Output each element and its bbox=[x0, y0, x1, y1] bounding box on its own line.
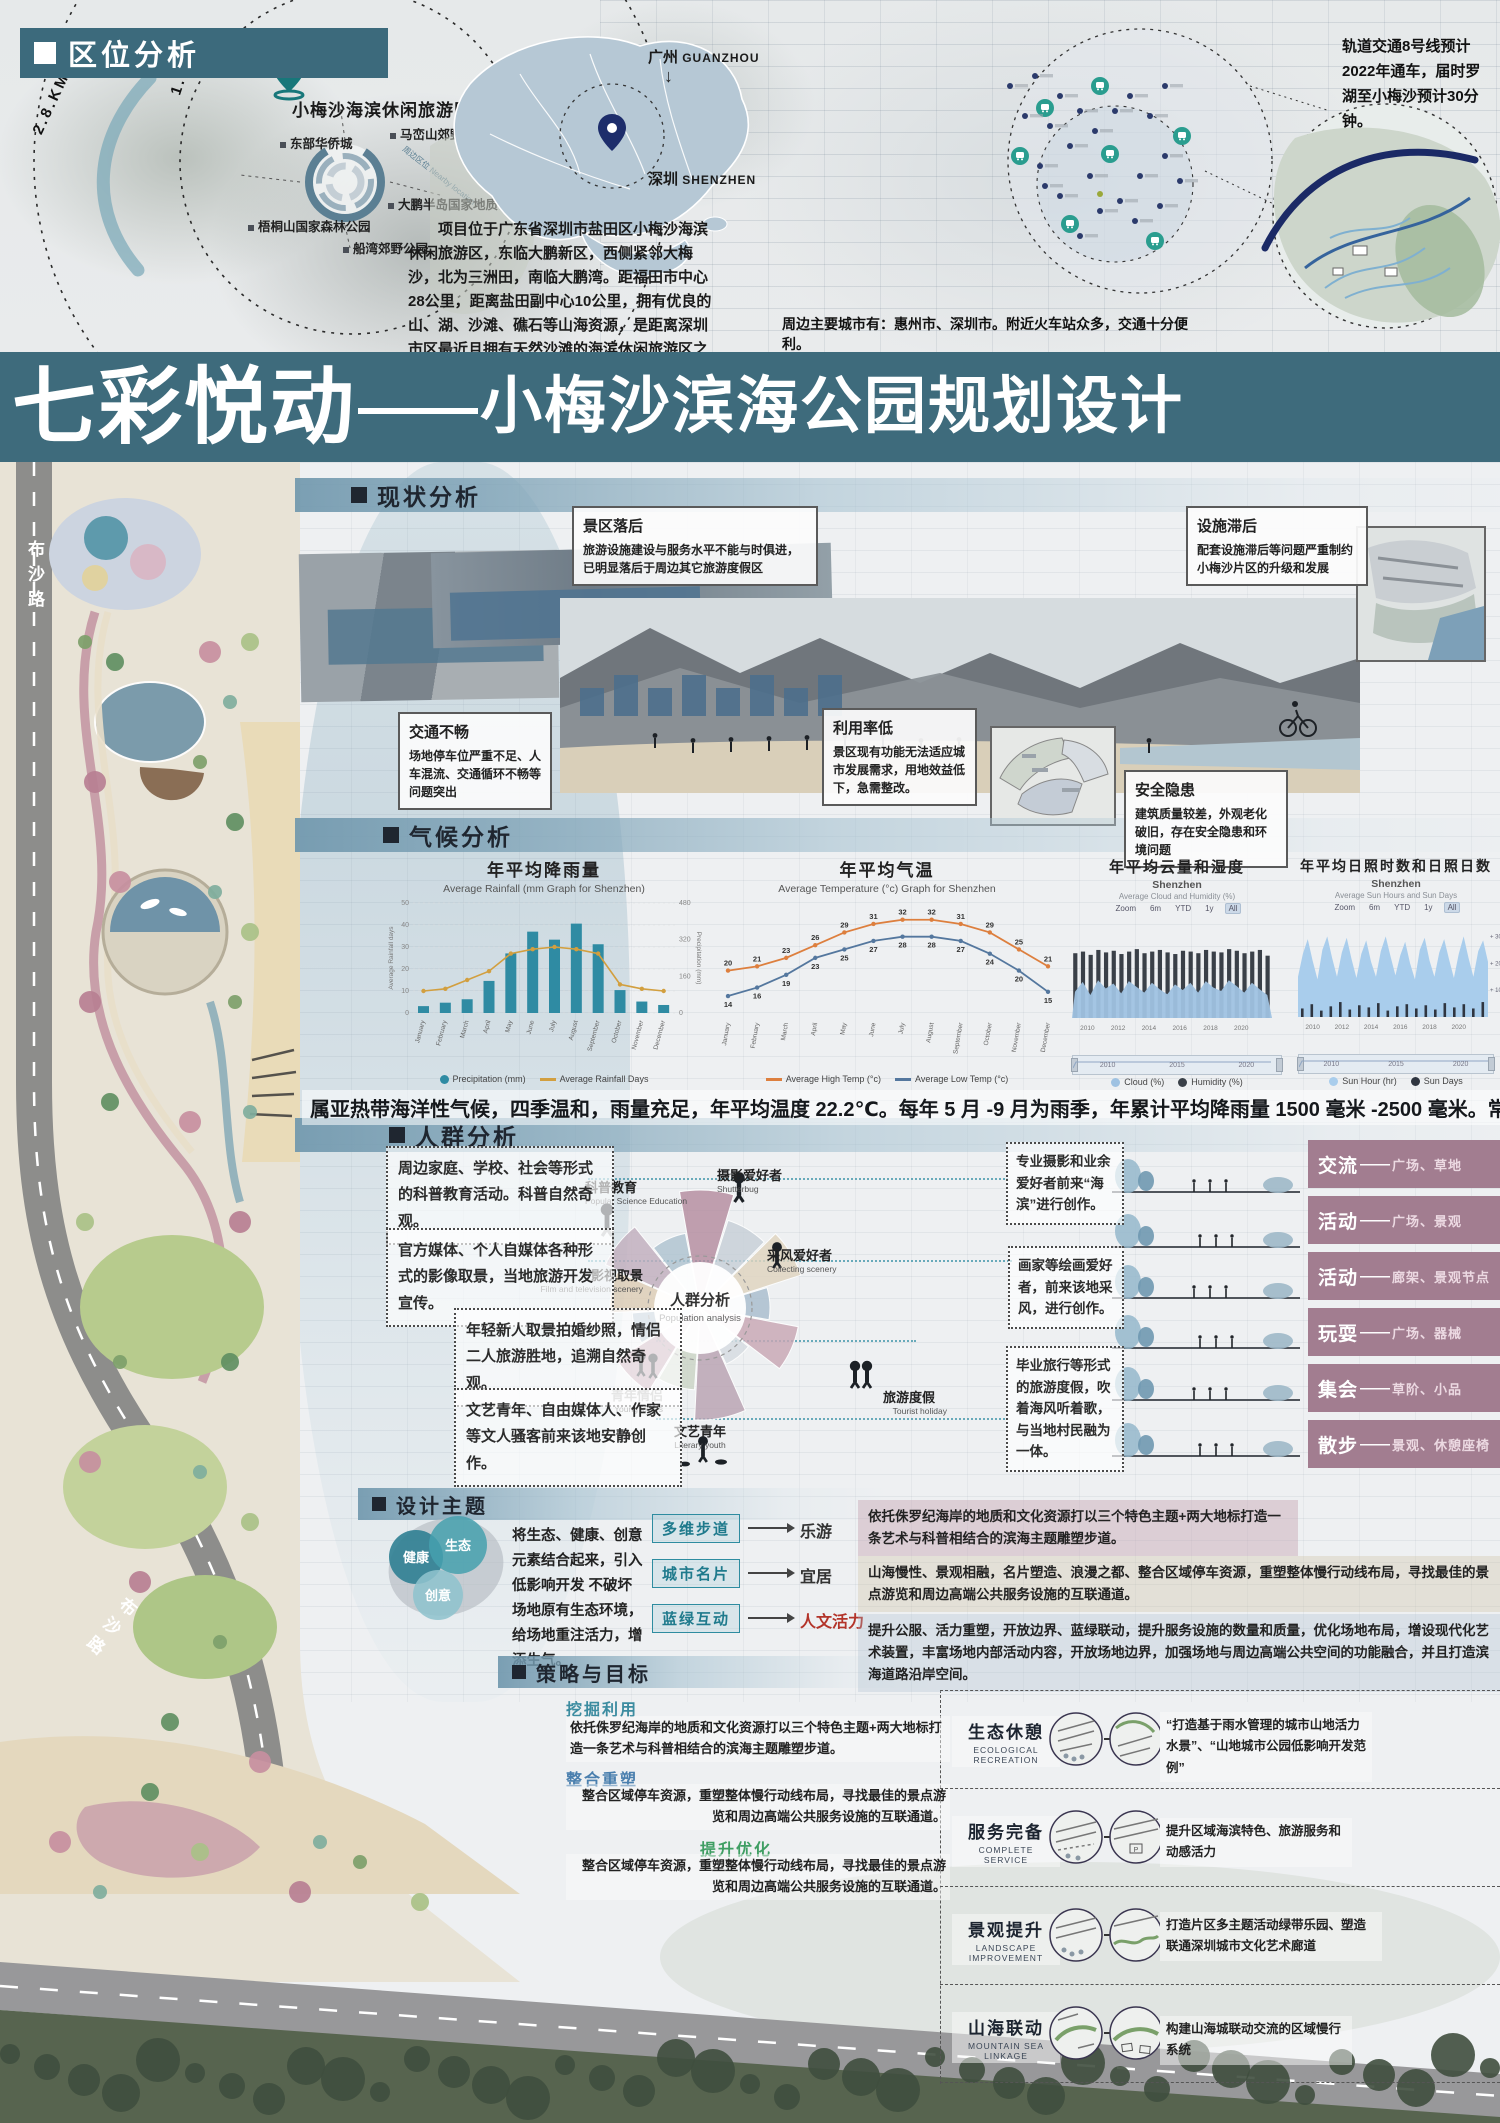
tick-label: January bbox=[414, 1019, 427, 1044]
tick-label: 160 bbox=[679, 973, 691, 980]
poi-label-ocbc: 东部华侨城 bbox=[280, 133, 353, 152]
tag-activity: 散步 bbox=[1318, 1431, 1358, 1458]
sun-legend: Sun Hour (hr)Sun Days bbox=[1292, 1076, 1500, 1086]
callout-body: 建筑质量较差，外观老化破旧，存在安全隐患和环境问题 bbox=[1135, 805, 1277, 859]
transit-note: 轨道交通8号线预计2022年通车，届时罗湖至小梅沙预计30分钟。 bbox=[1342, 34, 1494, 134]
legend-item: Cloud (%) bbox=[1111, 1077, 1164, 1087]
zoom-range-button[interactable]: 1y bbox=[1202, 904, 1216, 913]
climate-analysis-header: 气候分析 bbox=[295, 818, 1500, 852]
tick-label: 2014 bbox=[1142, 1025, 1157, 1032]
tick-label: 2010 bbox=[1305, 1024, 1320, 1031]
tick-label: 0 bbox=[679, 1010, 683, 1017]
tick-label: 28 bbox=[927, 941, 935, 950]
tick-label: 23 bbox=[811, 962, 819, 971]
guangzhou-zh: 广州 bbox=[648, 49, 678, 66]
callout-body: 配套设施滞后等问题严重制约小梅沙片区的升级和发展 bbox=[1197, 541, 1357, 577]
goal-label-landscape: 景观提升 LANDSCAPE IMPROVEMENT bbox=[952, 1914, 1060, 1965]
group-collecting-zh: 采风爱好者 bbox=[766, 1248, 832, 1263]
tick-label: 2012 bbox=[1111, 1025, 1126, 1032]
chart-subtitle: Average Rainfall (mm Graph for Shenzhen) bbox=[383, 883, 705, 895]
legend-item: Average Low Temp (°c) bbox=[895, 1074, 1008, 1084]
scrubber-year-label: 2020 bbox=[1453, 1061, 1469, 1068]
tag-assembly: 集会——草阶、小品 bbox=[1308, 1364, 1500, 1412]
tick-label: January bbox=[721, 1021, 732, 1046]
tick-label: February bbox=[750, 1021, 762, 1049]
temperature-line bbox=[728, 920, 1048, 971]
tick-label: 29 bbox=[986, 920, 994, 929]
tick-label: November bbox=[631, 1019, 646, 1051]
tag-separator: —— bbox=[1360, 1268, 1390, 1285]
tick-label: + 300hr bbox=[1490, 934, 1500, 940]
goal-diagram-ecological bbox=[1048, 1706, 1160, 1772]
tick-label: December bbox=[653, 1019, 668, 1051]
tick-label: 19 bbox=[782, 979, 790, 988]
tag-separator: —— bbox=[1360, 1380, 1390, 1397]
zoom-range-button[interactable]: 6m bbox=[1366, 903, 1383, 912]
location-analysis-header: 区位分析 bbox=[20, 28, 388, 78]
tick-label: 23 bbox=[782, 946, 790, 955]
zoom-range-button[interactable]: All bbox=[1225, 903, 1242, 914]
callout-traffic: 交通不畅 场地停车位严重不足、人车混流、交通循环不畅等问题突出 bbox=[398, 712, 552, 810]
tick-label: 2018 bbox=[1203, 1025, 1218, 1032]
rainfall-plot: 010203040500160320480Average Rainfall da… bbox=[383, 895, 705, 1067]
tag-activity: 活动 bbox=[1318, 1207, 1358, 1234]
chart-subtitle: Shenzhen bbox=[1066, 879, 1288, 891]
tick-label: 2020 bbox=[1452, 1024, 1467, 1031]
callout-title: 设施滞后 bbox=[1197, 515, 1357, 536]
poster-title-rest: 小梅沙滨海公园规划设计 bbox=[480, 376, 1184, 438]
tag-activity: 活动 bbox=[1318, 1263, 1358, 1290]
pop-note-photographers: 专业摄影和业余爱好者前来“海滨”进行创作。 bbox=[1006, 1142, 1124, 1225]
status-analysis-title: 现状分析 bbox=[377, 478, 481, 512]
location-analysis-title: 区位分析 bbox=[68, 32, 200, 74]
tag-activity: 集会 bbox=[1318, 1375, 1358, 1402]
tick-label: 20 bbox=[724, 959, 732, 968]
tick-label: 30 bbox=[401, 944, 409, 951]
svg-text:P: P bbox=[1134, 1847, 1139, 1854]
tick-label: Average Rainfall days bbox=[388, 926, 395, 990]
climate-analysis-title: 气候分析 bbox=[409, 818, 513, 852]
callout-title: 交通不畅 bbox=[409, 721, 541, 742]
tick-label: 32 bbox=[927, 908, 935, 917]
sun-zoom-controls: Zoom6mYTD1yAll bbox=[1292, 902, 1500, 913]
tag-places: 广场、草地 bbox=[1392, 1155, 1462, 1174]
rainfall-chart: 年平均降雨量 Average Rainfall (mm Graph for Sh… bbox=[383, 856, 705, 1084]
tick-label: 28 bbox=[898, 941, 906, 950]
tick-label: April bbox=[810, 1022, 819, 1037]
tick-label: 27 bbox=[869, 945, 877, 954]
header-square-icon bbox=[383, 827, 399, 843]
tick-label: March bbox=[780, 1022, 790, 1041]
temperature-plot: 2021232629313232312925211416192325272828… bbox=[712, 895, 1062, 1067]
shenzhen-label: 深圳 SHENZHEN bbox=[648, 168, 756, 189]
tick-label: May bbox=[504, 1019, 514, 1033]
sun-scrubber[interactable]: 201020152020 bbox=[1298, 1054, 1494, 1074]
design-paragraph-3: 提升公服、活力重塑，开放边界、蓝绿联动，提升服务设施的数量和质量，优化场地布局，… bbox=[858, 1614, 1500, 1692]
tick-label: August bbox=[568, 1020, 580, 1042]
tick-label: 14 bbox=[724, 1000, 733, 1009]
group-holiday-zh: 旅游度假 bbox=[883, 1390, 936, 1405]
callout-title: 利用率低 bbox=[833, 717, 966, 738]
callout-low-utilization: 利用率低 景区现有功能无法适应城市发展需求，用地效益低下，急需整改。 bbox=[822, 708, 977, 806]
chart-title: 年平均日照时数和日照日数 bbox=[1292, 856, 1500, 876]
zoom-range-button[interactable]: YTD bbox=[1172, 904, 1194, 913]
scrubber-year-label: 2010 bbox=[1100, 1062, 1116, 1069]
tick-label: 320 bbox=[679, 937, 691, 944]
strategy-body-excavate: 依托侏罗纪海岸的地质和文化资源打以三个特色主题+两大地标打造一条艺术与科普相结合… bbox=[566, 1716, 950, 1762]
tick-label: April bbox=[482, 1019, 492, 1034]
cloud-scrubber[interactable]: 201020152020 bbox=[1072, 1055, 1282, 1075]
goal-desc-ecological: “打造基于雨水管理的城市山地活力水景”、“山地城市公园低影响开发范例” bbox=[1160, 1712, 1372, 1782]
goal-title-en: COMPLETE SERVICE bbox=[956, 1845, 1056, 1865]
venn-diagram: 健康 生态 创意 bbox=[378, 1505, 508, 1637]
tick-label: 27 bbox=[957, 945, 965, 954]
tag-places: 广场、景观 bbox=[1392, 1211, 1462, 1230]
goal-row-divider bbox=[940, 2082, 1500, 2083]
goal-row-divider bbox=[940, 1788, 1500, 1789]
legend-item: Average Rainfall Days bbox=[540, 1074, 649, 1084]
tick-label: December bbox=[1040, 1021, 1052, 1053]
venn-creativity: 创意 bbox=[424, 1588, 451, 1603]
cloud-zoom-controls: Zoom6mYTD1yAll bbox=[1066, 903, 1288, 914]
tag-separator: —— bbox=[1360, 1436, 1390, 1453]
temperature-legend: Average High Temp (°c)Average Low Temp (… bbox=[712, 1074, 1062, 1084]
arrow-down-icon: ↓ bbox=[664, 66, 673, 87]
zoom-range-button[interactable]: All bbox=[1444, 902, 1461, 913]
cloud-area bbox=[1072, 980, 1272, 1018]
scrubber-year-label: 2020 bbox=[1239, 1062, 1255, 1069]
arrow-right-icon bbox=[748, 1617, 788, 1619]
sun-plot: + 300hr+ 200hr+ 100hr2010201220142016201… bbox=[1292, 913, 1500, 1045]
tick-label: 2016 bbox=[1172, 1025, 1187, 1032]
design-theme-intro: 将生态、健康、创意元素结合起来，引入低影响开发 不破坏场地原有生态环境，给场地重… bbox=[512, 1524, 646, 1674]
tag-separator: —— bbox=[1360, 1324, 1390, 1341]
tick-label: 26 bbox=[811, 933, 819, 942]
temperature-line bbox=[728, 937, 1048, 996]
header-square-icon bbox=[351, 487, 367, 503]
tag-places: 廊架、景观节点 bbox=[1392, 1267, 1490, 1286]
guangzhou-en: GUANZHOU bbox=[682, 51, 759, 65]
goal-row-divider bbox=[940, 1886, 1500, 1887]
tick-label: 480 bbox=[679, 900, 691, 907]
tick-label: 2018 bbox=[1422, 1024, 1437, 1031]
chart-note: Average Sun Hours and Sun Days bbox=[1292, 891, 1500, 900]
flow-target-leisure: 乐游 bbox=[800, 1518, 832, 1542]
framed-zoning-diagram bbox=[990, 726, 1116, 826]
header-square-icon bbox=[389, 1127, 405, 1143]
tag-activity-1: 活动——广场、景观 bbox=[1308, 1196, 1500, 1244]
cloud-legend: Cloud (%)Humidity (%) bbox=[1066, 1077, 1288, 1087]
design-paragraph-1: 依托侏罗纪海岸的地质和文化资源打以三个特色主题+两大地标打造一条艺术与科普相结合… bbox=[858, 1500, 1298, 1556]
temperature-chart: 年平均气温 Average Temperature (°c) Graph for… bbox=[712, 856, 1062, 1084]
chart-subtitle: Average Temperature (°c) Graph for Shenz… bbox=[712, 883, 1062, 895]
group-holiday-en: Tourist holiday bbox=[893, 1406, 948, 1416]
goal-title-en: MOUNTAIN SEA LINKAGE bbox=[956, 2041, 1056, 2061]
activity-section-sketches bbox=[1108, 1140, 1304, 1470]
chart-title: 年平均降雨量 bbox=[383, 856, 705, 881]
tick-label: 0 bbox=[405, 1010, 409, 1017]
legend-item: Sun Hour (hr) bbox=[1329, 1076, 1397, 1086]
tag-walk: 散步——景观、休憩座椅 bbox=[1308, 1420, 1500, 1468]
tick-label: November bbox=[1011, 1021, 1023, 1053]
tag-places: 景观、休憩座椅 bbox=[1392, 1435, 1490, 1454]
strategy-goals-title: 策略与目标 bbox=[536, 1658, 651, 1687]
legend-item: Precipitation (mm) bbox=[440, 1074, 526, 1084]
plan-thumbnail-art bbox=[1358, 528, 1484, 660]
pop-note-tourists: 毕业旅行等形式的旅游度假，吹着海风听着歌，与当地村民融为一体。 bbox=[1006, 1346, 1124, 1472]
strategy-body-integrate: 整合区域停车资源，重塑整体慢行动线布局，寻找最佳的景点游览和周边高端公共服务设施… bbox=[566, 1784, 950, 1830]
location-analysis-section: 周边区位 Nearby location 2.8.KM 1.0KM 小梅沙海滨休… bbox=[0, 0, 1500, 352]
pop-note-painters: 画家等绘画爱好者，前来该地采风，进行创作。 bbox=[1008, 1246, 1124, 1329]
goal-desc-linkage: 构建山海城联动交流的区域慢行系统 bbox=[1160, 2016, 1352, 2065]
callout-body: 场地停车位严重不足、人车混流、交通循环不畅等问题突出 bbox=[409, 747, 541, 801]
sun-hours-area bbox=[1298, 936, 1488, 1017]
tick-label: + 100hr bbox=[1490, 988, 1500, 994]
flow-multiway-path: 多维步道 bbox=[652, 1514, 740, 1543]
goal-diagram-linkage bbox=[1048, 2000, 1160, 2066]
tick-label: 20 bbox=[1015, 975, 1023, 984]
tick-label: August bbox=[925, 1022, 935, 1043]
tag-separator: —— bbox=[1360, 1156, 1390, 1173]
tick-label: 2016 bbox=[1393, 1024, 1408, 1031]
zoom-label: Zoom bbox=[1332, 903, 1358, 912]
tick-label: 24 bbox=[986, 958, 995, 967]
cloud-humidity-plot: 201020122014201620182020 bbox=[1066, 914, 1288, 1046]
scrubber-year-label: 2015 bbox=[1388, 1061, 1404, 1068]
tick-label: 31 bbox=[957, 912, 965, 921]
venn-ecology: 生态 bbox=[445, 1538, 471, 1553]
callout-scenic-backward: 景区落后 旅游设施建设与服务水平不能与时俱进，已明显落后于周边其它旅游度假区 bbox=[572, 506, 818, 586]
tick-label: February bbox=[435, 1019, 449, 1047]
tick-label: 25 bbox=[1015, 937, 1023, 946]
group-literary-en: Literary youth bbox=[674, 1440, 726, 1450]
callout-title: 景区落后 bbox=[583, 515, 807, 536]
tick-label: + 200hr bbox=[1490, 961, 1500, 967]
design-paragraph-2: 山海慢性、景观相融，名片塑造、浪漫之都、整合区域停车资源，重塑整体慢行动线布局，… bbox=[858, 1556, 1500, 1612]
precipitation-bars bbox=[418, 924, 669, 1013]
shenzhen-zh: 深圳 bbox=[648, 171, 678, 188]
arrow-right-icon bbox=[748, 1527, 788, 1529]
flow-blue-green: 蓝绿互动 bbox=[652, 1604, 740, 1633]
pop-note-writers: 文艺青年、自由媒体人、作家等文人骚客前来该地安静创作。 bbox=[454, 1388, 682, 1487]
tick-label: Precipitation (mm) bbox=[695, 932, 702, 985]
tick-label: 2010 bbox=[1080, 1025, 1095, 1032]
tag-play: 玩耍——广场、器械 bbox=[1308, 1308, 1500, 1356]
goal-row-divider bbox=[940, 1690, 1500, 1691]
tick-label: 2012 bbox=[1335, 1024, 1350, 1031]
tag-activity: 交流 bbox=[1318, 1151, 1358, 1178]
cloud-humidity-chart: 年平均云量和湿度 Shenzhen Average Cloud and Humi… bbox=[1066, 856, 1288, 1087]
radial-center-zh: 人群分析 bbox=[670, 1291, 730, 1309]
tick-label: 29 bbox=[840, 920, 848, 929]
tick-label: 21 bbox=[1044, 954, 1052, 963]
tag-places: 广场、器械 bbox=[1392, 1323, 1462, 1342]
goal-diagram-landscape bbox=[1048, 1902, 1160, 1968]
tick-label: 32 bbox=[898, 908, 906, 917]
teal-arc-road bbox=[103, 78, 150, 270]
tick-label: 2020 bbox=[1234, 1025, 1249, 1032]
flow-city-card: 城市名片 bbox=[652, 1559, 740, 1588]
tick-label: June bbox=[526, 1019, 537, 1035]
goal-label-linkage: 山海联动 MOUNTAIN SEA LINKAGE bbox=[952, 2012, 1060, 2063]
sun-chart: 年平均日照时数和日照日数 Shenzhen Average Sun Hours … bbox=[1292, 856, 1500, 1086]
tag-separator: —— bbox=[1360, 1212, 1390, 1229]
callout-facility-lag: 设施滞后 配套设施滞后等问题严重制约小梅沙片区的升级和发展 bbox=[1186, 506, 1368, 586]
callout-body: 景区现有功能无法适应城市发展需求，用地效益低下，急需整改。 bbox=[833, 743, 966, 797]
zoom-range-button[interactable]: YTD bbox=[1391, 903, 1413, 912]
chart-note: Average Cloud and Humidity (%) bbox=[1066, 892, 1288, 901]
scrubber-year-label: 2010 bbox=[1324, 1061, 1340, 1068]
poster-title-dash: —— bbox=[358, 377, 478, 437]
tick-label: 25 bbox=[840, 953, 848, 962]
zoom-label: Zoom bbox=[1113, 904, 1139, 913]
goal-title-en: ECOLOGICAL RECREATION bbox=[956, 1745, 1056, 1765]
chart-subtitle: Shenzhen bbox=[1292, 878, 1500, 890]
goal-title: 服务完备 bbox=[956, 1818, 1056, 1843]
goal-label-service: 服务完备 COMPLETE SERVICE bbox=[952, 1816, 1060, 1867]
goal-title-en: LANDSCAPE IMPROVEMENT bbox=[956, 1943, 1056, 1963]
goal-diagram-service: P bbox=[1048, 1804, 1160, 1870]
callout-title: 安全隐患 bbox=[1135, 779, 1277, 800]
flow-target-vitality: 人文活力 bbox=[800, 1608, 864, 1632]
tick-label: 40 bbox=[401, 922, 409, 929]
scrubber-year-label: 2015 bbox=[1169, 1062, 1185, 1069]
tick-label: July bbox=[548, 1019, 558, 1033]
tick-label: 20 bbox=[401, 966, 409, 973]
framed-plan-thumbnail bbox=[1356, 526, 1486, 662]
tick-label: September bbox=[587, 1019, 602, 1052]
tick-label: June bbox=[868, 1022, 877, 1037]
header-square-icon bbox=[512, 1665, 526, 1679]
poster-title-lead: 七彩悦动 bbox=[12, 365, 356, 449]
callout-safety: 安全隐患 建筑质量较差，外观老化破旧，存在安全隐患和环境问题 bbox=[1124, 770, 1288, 868]
poster-board: 周边区位 Nearby location 2.8.KM 1.0KM 小梅沙海滨休… bbox=[0, 0, 1500, 2123]
tag-activity: 玩耍 bbox=[1318, 1319, 1358, 1346]
group-shutterbug-zh: 摄影爱好者 bbox=[717, 1168, 782, 1183]
header-square-icon bbox=[34, 42, 56, 64]
goal-title: 山海联动 bbox=[956, 2014, 1056, 2039]
strategy-body-enhance: 整合区域停车资源，重塑整体慢行动线布局，寻找最佳的景点游览和周边高端公共服务设施… bbox=[566, 1854, 950, 1900]
zoning-diagram-art bbox=[992, 728, 1114, 824]
venn-health: 健康 bbox=[403, 1550, 430, 1565]
poi-label-wutongshan: 梧桐山国家森林公园 bbox=[248, 216, 371, 235]
goal-label-ecological: 生态休憩 ECOLOGICAL RECREATION bbox=[952, 1716, 1060, 1767]
goal-desc-service: 提升区域海滨特色、旅游服务和动感活力 bbox=[1160, 1818, 1352, 1867]
callout-body: 旅游设施建设与服务水平不能与时俱进，已明显落后于周边其它旅游度假区 bbox=[583, 541, 807, 577]
chart-title: 年平均云量和湿度 bbox=[1066, 856, 1288, 877]
cities-note: 周边主要城市有：惠州市、深圳市。附近火车站众多，交通十分便利。 bbox=[782, 314, 1212, 352]
tick-label: 15 bbox=[1044, 996, 1052, 1005]
tick-label: 50 bbox=[401, 900, 409, 907]
chart-title: 年平均气温 bbox=[712, 856, 1062, 881]
title-banner: 七彩悦动 —— 小梅沙滨海公园规划设计 bbox=[0, 352, 1500, 462]
tick-label: October bbox=[611, 1019, 624, 1044]
legend-item: Humidity (%) bbox=[1178, 1077, 1243, 1087]
tick-label: 2014 bbox=[1364, 1024, 1379, 1031]
legend-item: Average High Temp (°c) bbox=[766, 1074, 881, 1084]
road-label-busha-1: 布沙路 bbox=[22, 540, 47, 615]
rainfall-legend: Precipitation (mm)Average Rainfall Days bbox=[383, 1074, 705, 1084]
arrow-right-icon bbox=[748, 1572, 788, 1574]
tick-label: October bbox=[983, 1021, 994, 1046]
flow-target-livable: 宜居 bbox=[800, 1563, 832, 1587]
goal-row-divider bbox=[940, 1984, 1500, 1985]
tick-label: May bbox=[839, 1021, 848, 1035]
intro-paragraph: 项目位于广东省深圳市盐田区小梅沙海滨休闲旅游区，东临大鹏新区，西侧紧邻大梅沙，北… bbox=[408, 218, 714, 352]
tick-label: March bbox=[459, 1019, 471, 1039]
legend-item: Sun Days bbox=[1411, 1076, 1463, 1086]
zoom-range-button[interactable]: 1y bbox=[1421, 903, 1435, 912]
tick-label: September bbox=[952, 1021, 965, 1054]
guangzhou-label: 广州 GUANZHOU bbox=[648, 46, 760, 67]
tick-label: 10 bbox=[401, 988, 409, 995]
goal-title: 生态休憩 bbox=[956, 1718, 1056, 1743]
group-collecting-en: Collecting scenery bbox=[767, 1264, 837, 1274]
tick-label: 21 bbox=[753, 954, 761, 963]
tag-places: 草阶、小品 bbox=[1392, 1379, 1462, 1398]
nearby-ring-diagram bbox=[307, 144, 383, 220]
shenzhen-en: SHENZHEN bbox=[682, 173, 756, 187]
group-shutterbug-en: Shutterbug bbox=[717, 1184, 759, 1194]
tick-label: July bbox=[898, 1021, 907, 1034]
goal-title: 景观提升 bbox=[956, 1916, 1056, 1941]
tick-label: 31 bbox=[869, 912, 877, 921]
rail-detail-map bbox=[1235, 98, 1500, 338]
zoom-range-button[interactable]: 6m bbox=[1147, 904, 1164, 913]
tick-label: 16 bbox=[753, 992, 761, 1001]
tag-activity-2: 活动——廊架、景观节点 bbox=[1308, 1252, 1500, 1300]
goal-desc-landscape: 打造片区多主题活动绿带乐园、塑造联通深圳城市文化艺术廊道 bbox=[1160, 1912, 1382, 1961]
tag-communication: 交流——广场、草地 bbox=[1308, 1140, 1500, 1188]
climate-summary: 属亚热带海洋性气候，四季温和，雨量充足，年平均温度 22.2℃。每年 5 月 -… bbox=[302, 1090, 1500, 1125]
